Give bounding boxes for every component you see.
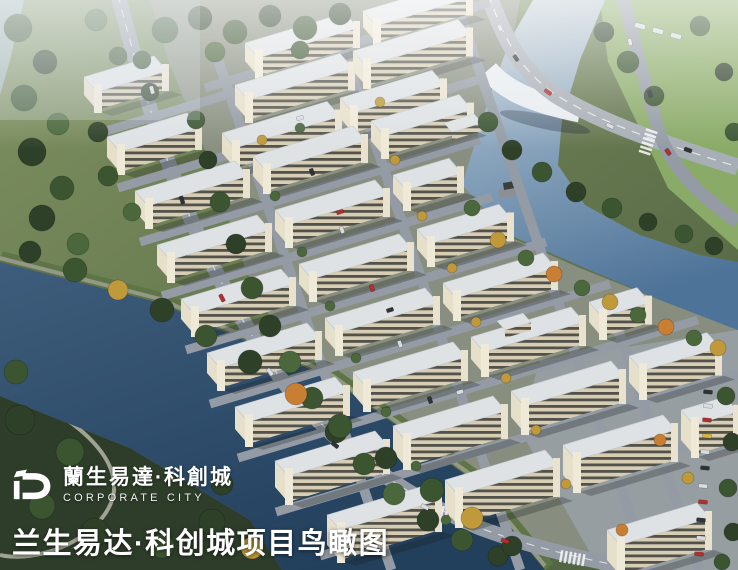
brand-logo: 蘭生易達·科創城 CORPORATE CITY xyxy=(13,466,233,505)
brand-logo-icon xyxy=(13,469,53,505)
brand-name-en: CORPORATE CITY xyxy=(63,492,233,504)
brand-name-cn: 蘭生易達·科創城 xyxy=(63,466,233,489)
image-caption: 兰生易达·科创城项目鸟瞰图 xyxy=(12,520,389,562)
haze-left xyxy=(0,0,200,120)
